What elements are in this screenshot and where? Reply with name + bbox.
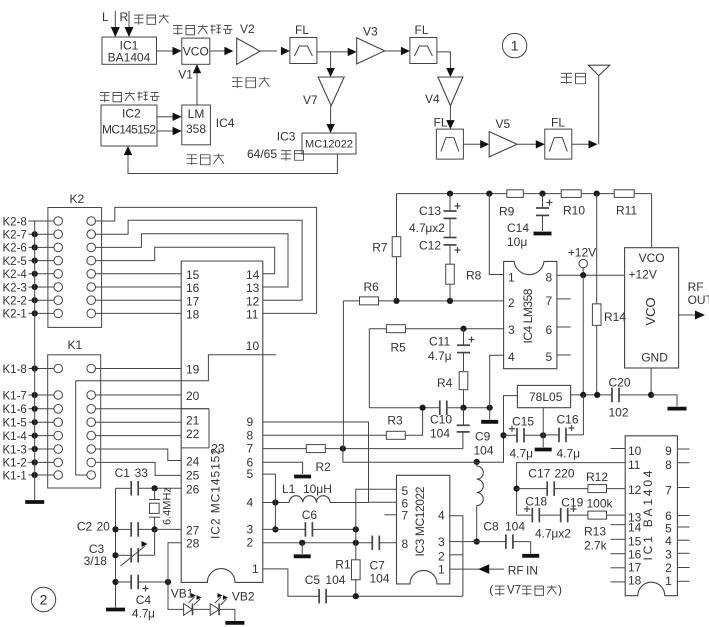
svg-text:C15: C15 [512,415,534,429]
svg-text:K2-6: K2-6 [3,243,27,255]
svg-text:K2-2: K2-2 [3,296,27,308]
svg-text:C1: C1 [115,466,131,480]
svg-text:μx2: μx2 [425,221,445,235]
svg-text:GND: GND [641,351,668,365]
svg-text:64/65: 64/65 [247,147,277,161]
svg-text:R11: R11 [616,204,637,218]
svg-text:C17: C17 [528,467,550,481]
svg-text:): ) [558,583,562,597]
svg-text:C16: C16 [557,413,579,427]
svg-text:220: 220 [555,467,575,481]
svg-text:MC145152: MC145152 [102,123,156,137]
svg-text:C19: C19 [561,496,583,510]
svg-text:FL: FL [415,23,429,37]
svg-text:VB1: VB1 [171,587,194,601]
svg-text:R9: R9 [499,205,515,219]
svg-text:+12V: +12V [568,246,596,260]
svg-text:MC12022: MC12022 [305,139,353,151]
svg-text:6.4MHz: 6.4MHz [162,487,174,525]
svg-text:5: 5 [546,350,553,364]
svg-text:14: 14 [628,521,642,535]
svg-text:IC2 MC145152: IC2 MC145152 [209,448,223,539]
svg-text:7: 7 [247,442,254,456]
svg-text:VCO: VCO [183,45,209,59]
svg-text:VCO: VCO [639,251,665,265]
svg-text:IN: IN [526,564,538,578]
svg-text:C11: C11 [429,335,450,349]
svg-text:+12V: +12V [629,268,657,282]
svg-text:3: 3 [508,323,515,337]
svg-text:K1-5: K1-5 [3,418,27,430]
svg-text:25: 25 [186,469,200,483]
svg-text:IC3 MC12022: IC3 MC12022 [413,486,427,556]
svg-text:C8: C8 [483,520,499,534]
svg-text:15: 15 [628,535,642,549]
svg-text:4.7: 4.7 [535,527,552,541]
svg-text:IC3: IC3 [277,130,296,144]
svg-text:20: 20 [97,520,111,534]
svg-text:7: 7 [665,484,672,498]
svg-text:3: 3 [665,548,672,562]
svg-text:8: 8 [247,428,254,442]
svg-text:R8: R8 [466,269,482,283]
svg-text:VCO: VCO [643,297,658,325]
svg-text:14: 14 [246,268,260,282]
svg-text:1: 1 [511,38,519,54]
svg-text:L: L [102,10,109,24]
svg-text:1: 1 [252,562,259,576]
svg-text:3/18: 3/18 [84,554,108,568]
svg-text:K1-1: K1-1 [3,470,27,482]
svg-text:16: 16 [186,281,200,295]
svg-text:1: 1 [438,563,445,577]
svg-text:10: 10 [303,482,317,496]
svg-text:104: 104 [474,444,494,458]
svg-text:μx2: μx2 [551,527,571,541]
svg-text:3: 3 [438,535,445,549]
svg-text:K2-5: K2-5 [3,256,27,268]
svg-text:18: 18 [628,573,642,587]
svg-text:7: 7 [546,294,553,308]
svg-text:C5: C5 [305,573,321,587]
svg-text:K2: K2 [70,192,85,206]
svg-text:8: 8 [402,537,409,551]
svg-text:K1-8: K1-8 [3,364,27,376]
svg-text:IC1 BA1404: IC1 BA1404 [641,470,655,560]
svg-text:K1-3: K1-3 [3,444,27,456]
svg-text:R10: R10 [563,204,585,218]
svg-text:FL: FL [295,23,309,37]
svg-text:78L05: 78L05 [529,390,563,404]
svg-text:V3: V3 [363,25,378,39]
svg-text:104: 104 [370,572,390,586]
svg-text:R5: R5 [391,341,407,355]
svg-text:4.7: 4.7 [132,607,149,621]
svg-text:104: 104 [325,573,345,587]
svg-text:LM: LM [188,107,205,121]
svg-text:C14: C14 [507,221,529,235]
svg-text:μ: μ [148,607,155,621]
svg-text:V4: V4 [425,92,440,106]
svg-text:104: 104 [430,427,450,441]
svg-text:(: ( [489,583,493,597]
svg-text:28: 28 [186,537,200,551]
svg-text:IC2: IC2 [122,107,141,121]
svg-text:18: 18 [186,308,200,322]
svg-text:K1: K1 [68,338,83,352]
svg-text:VB2: VB2 [232,590,255,604]
svg-text:C6: C6 [302,508,318,522]
svg-text:19: 19 [186,363,200,377]
svg-text:4.7μ: 4.7μ [510,447,534,461]
svg-text:C20: C20 [609,376,631,390]
svg-text:4: 4 [247,496,254,510]
svg-text:13: 13 [246,281,260,295]
svg-text:11: 11 [246,308,259,322]
svg-text:K1-7: K1-7 [3,390,27,402]
svg-text:16: 16 [628,548,642,562]
svg-text:17: 17 [186,294,200,308]
svg-text:104: 104 [505,520,525,534]
svg-text:RF: RF [508,564,524,578]
svg-text:C10: C10 [430,413,452,427]
svg-text:C12: C12 [419,239,441,253]
svg-text:V7: V7 [507,585,521,597]
svg-text:33: 33 [135,466,149,480]
svg-text:BA1404: BA1404 [108,51,151,65]
svg-text:K2-1: K2-1 [3,309,27,321]
svg-text:21: 21 [186,414,200,428]
svg-text:V5: V5 [496,117,511,131]
svg-text:1: 1 [665,574,672,588]
svg-text:6: 6 [546,323,553,337]
svg-text:4: 4 [508,350,515,364]
svg-text:K2-8: K2-8 [3,216,27,228]
svg-text:C9: C9 [475,430,491,444]
svg-text:4: 4 [665,534,672,548]
svg-text:11: 11 [628,458,641,472]
svg-text:C4: C4 [136,593,152,607]
svg-text:R2: R2 [316,460,332,474]
svg-text:2.7k: 2.7k [584,539,608,553]
svg-text:10: 10 [628,444,642,458]
svg-text:2: 2 [247,535,254,549]
svg-text:9: 9 [247,415,254,429]
svg-text:R13: R13 [584,525,606,539]
svg-text:27: 27 [186,524,200,538]
svg-text:C13: C13 [419,204,441,218]
svg-text:R3: R3 [387,414,403,428]
svg-text:R12: R12 [586,470,608,484]
svg-text:V1: V1 [178,68,193,82]
svg-text:V2: V2 [240,22,255,36]
svg-text:10: 10 [246,339,260,353]
svg-text:FL: FL [551,116,565,130]
svg-text:1: 1 [508,271,515,285]
svg-text:FL: FL [434,116,448,130]
svg-text:102: 102 [609,406,629,420]
svg-text:V7: V7 [303,93,318,107]
svg-text:20: 20 [186,389,200,403]
svg-text:4.7: 4.7 [409,221,426,235]
svg-text:2: 2 [40,592,48,608]
svg-text:μH: μH [316,482,332,496]
svg-text:K2-4: K2-4 [3,269,28,281]
svg-text:12: 12 [246,294,260,308]
svg-text:2: 2 [665,561,672,575]
svg-text:R14: R14 [604,310,626,324]
svg-text:4.7μ: 4.7μ [557,447,581,461]
svg-text:R: R [120,10,129,24]
svg-text:K2-3: K2-3 [3,282,27,294]
svg-text:C2: C2 [77,520,93,534]
svg-text:R7: R7 [372,241,388,255]
svg-text:4: 4 [438,508,445,522]
svg-text:23: 23 [211,441,225,455]
svg-text:R6: R6 [364,280,380,294]
svg-text:5: 5 [247,467,254,481]
svg-text:10μ: 10μ [507,235,527,249]
svg-text:24: 24 [186,455,200,469]
svg-text:IC4: IC4 [216,116,235,130]
svg-text:K1-6: K1-6 [3,404,27,416]
svg-text:15: 15 [186,268,200,282]
svg-text:8: 8 [665,458,672,472]
svg-text:2: 2 [508,296,515,310]
svg-text:R1: R1 [335,558,351,572]
svg-text:358: 358 [186,122,206,136]
svg-text:8: 8 [546,271,553,285]
svg-text:22: 22 [186,427,200,441]
svg-text:K1-2: K1-2 [3,458,27,470]
svg-text:3: 3 [247,522,254,536]
svg-text:12: 12 [628,483,642,497]
svg-text:9: 9 [665,444,672,458]
svg-text:C7: C7 [370,559,386,573]
svg-text:IC4 LM358: IC4 LM358 [521,288,535,343]
svg-text:100k: 100k [587,497,614,511]
svg-text:R4: R4 [437,376,453,390]
svg-text:K2-7: K2-7 [3,230,27,242]
svg-text:L1: L1 [282,482,296,496]
svg-text:26: 26 [186,482,200,496]
svg-text:OUT: OUT [688,293,709,307]
svg-text:C18: C18 [525,495,547,509]
svg-text:7: 7 [402,508,409,522]
svg-text:K1-4: K1-4 [3,431,28,443]
svg-text:4.7μ: 4.7μ [428,349,452,363]
